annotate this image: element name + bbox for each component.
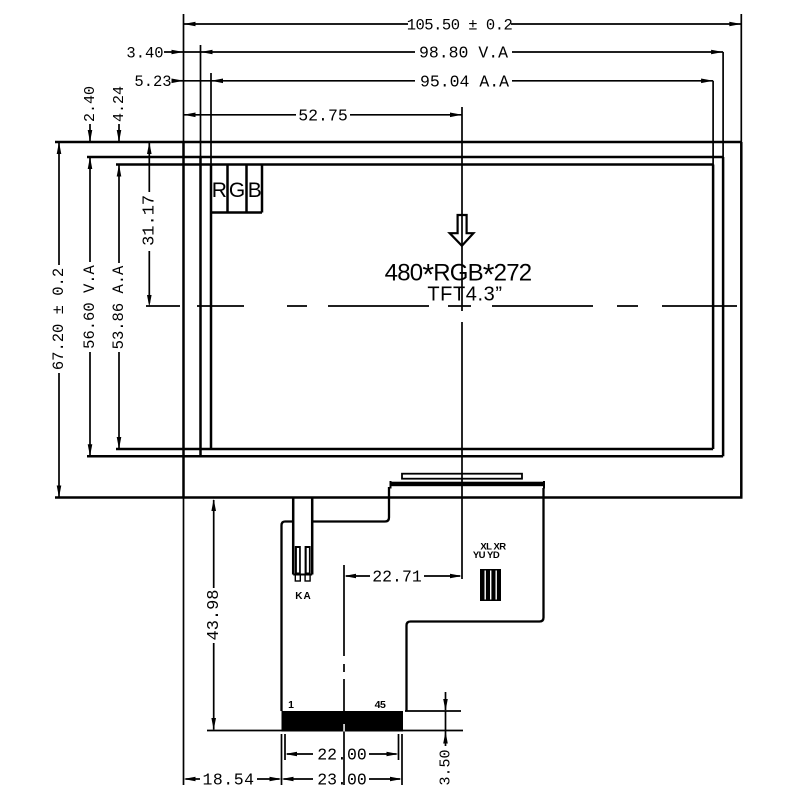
svg-text:45: 45 — [375, 699, 386, 711]
svg-text:2.40: 2.40 — [82, 86, 99, 122]
svg-text:22.71: 22.71 — [372, 568, 422, 587]
svg-text:22.00: 22.00 — [317, 746, 367, 765]
svg-text:67.20 ± 0.2: 67.20 ± 0.2 — [50, 268, 68, 370]
svg-text:TFT4.3”: TFT4.3” — [427, 284, 502, 306]
svg-text:105.50 ± 0.2: 105.50 ± 0.2 — [407, 16, 513, 34]
svg-text:G: G — [229, 179, 245, 202]
svg-text:B: B — [248, 179, 262, 202]
svg-text:R: R — [212, 179, 227, 202]
svg-text:23.00: 23.00 — [317, 771, 367, 790]
svg-text:52.75: 52.75 — [298, 106, 348, 125]
svg-text:31.17: 31.17 — [141, 195, 160, 246]
svg-text:43.98: 43.98 — [205, 589, 224, 640]
svg-text:KA: KA — [295, 591, 311, 602]
svg-text:1: 1 — [288, 699, 294, 711]
svg-text:98.80 V.A: 98.80 V.A — [419, 44, 508, 63]
svg-text:53.86 A.A: 53.86 A.A — [110, 265, 128, 349]
svg-text:18.54: 18.54 — [202, 771, 254, 790]
svg-text:3.40: 3.40 — [126, 44, 163, 62]
svg-text:5.23: 5.23 — [134, 73, 171, 91]
svg-text:YU YD: YU YD — [473, 550, 500, 561]
svg-text:95.04 A.A: 95.04 A.A — [420, 72, 509, 91]
svg-text:4.24: 4.24 — [111, 86, 128, 122]
svg-text:56.60 V.A: 56.60 V.A — [81, 264, 99, 348]
svg-text:3.50: 3.50 — [437, 749, 454, 785]
